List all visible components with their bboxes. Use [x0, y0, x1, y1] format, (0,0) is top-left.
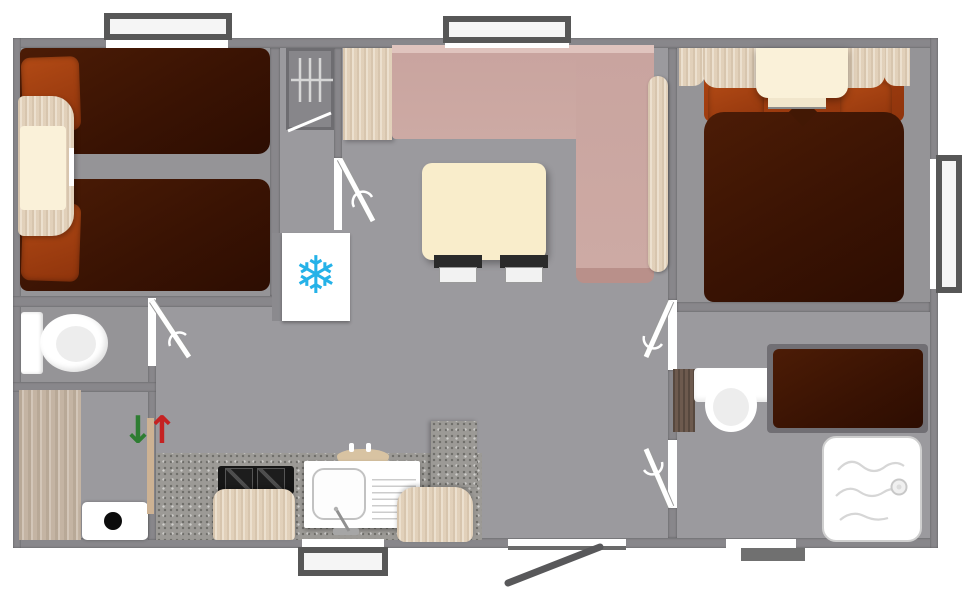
door-corridor: [340, 159, 373, 221]
sink-faucet: [334, 507, 349, 531]
floor-plan: ❄ ↓ ↑: [0, 0, 966, 600]
shower-drain: [892, 480, 907, 495]
entrance-door-leaf: [508, 547, 600, 583]
overlay-lines: [0, 0, 966, 600]
hanger-rail-icon: [291, 58, 333, 102]
wardrobe-door-swing: [288, 113, 331, 131]
door-shower-room: [644, 449, 671, 507]
door-bathroom: [644, 301, 671, 357]
door-bedroom-twin: [152, 301, 189, 357]
